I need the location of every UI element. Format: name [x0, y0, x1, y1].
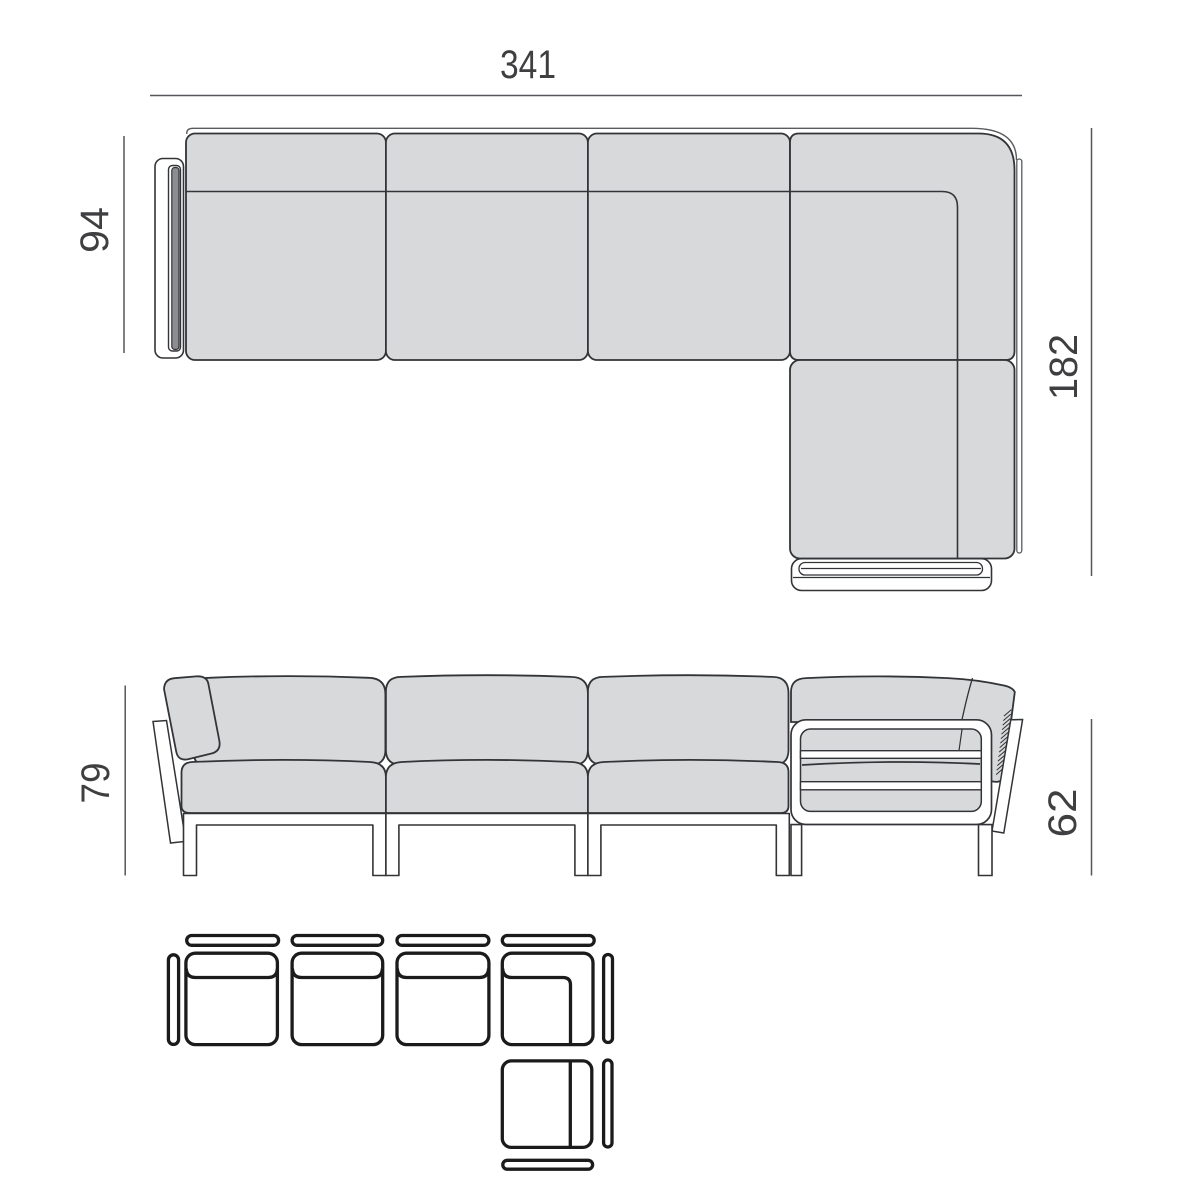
svg-text:79: 79	[74, 763, 118, 804]
svg-text:341: 341	[500, 43, 556, 87]
svg-text:94: 94	[73, 207, 117, 253]
svg-text:182: 182	[1042, 334, 1086, 400]
svg-text:62: 62	[1041, 789, 1085, 838]
